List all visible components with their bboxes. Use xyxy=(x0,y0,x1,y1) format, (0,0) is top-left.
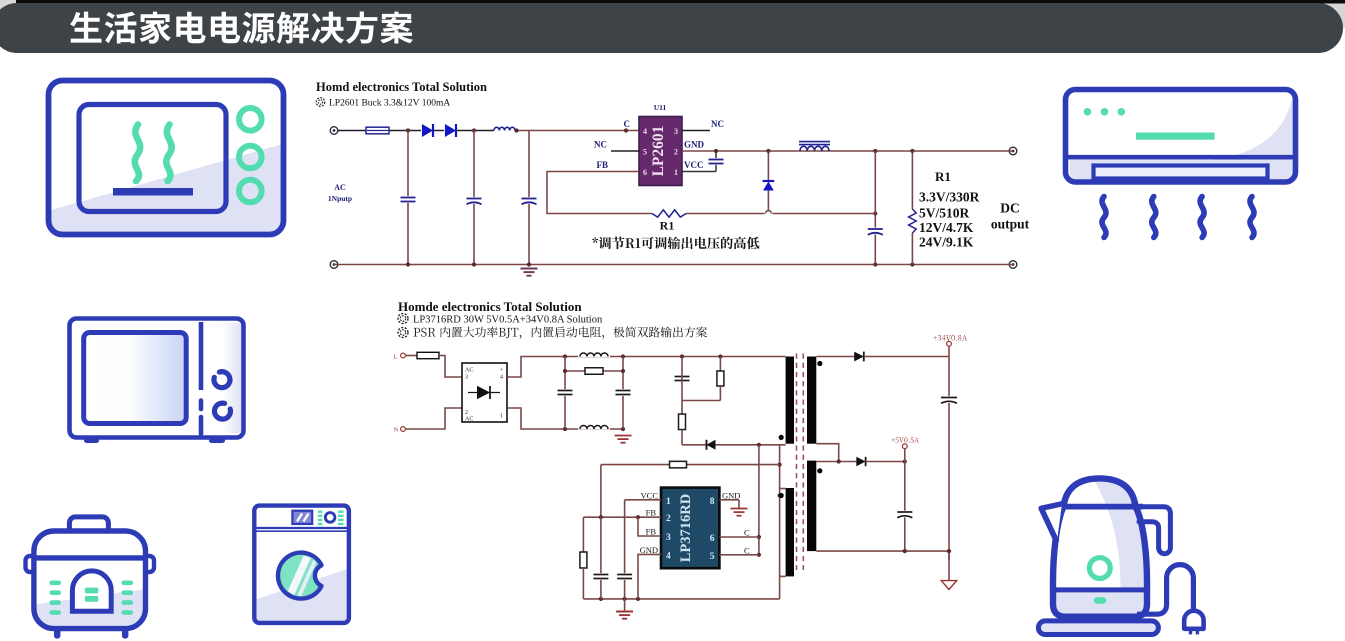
svg-text:VCC: VCC xyxy=(684,160,704,170)
svg-text:3: 3 xyxy=(674,127,678,136)
svg-text:LP2601: LP2601 xyxy=(650,126,667,177)
svg-text:GND: GND xyxy=(684,140,705,150)
svg-text:U11: U11 xyxy=(654,103,667,112)
svg-text:1: 1 xyxy=(674,168,678,177)
svg-text:LP3716RD: LP3716RD xyxy=(678,494,694,562)
svg-text:2: 2 xyxy=(674,148,678,157)
svg-text:LP3716RD 30W 5V0.5A+34V0.8A So: LP3716RD 30W 5V0.5A+34V0.8A Solution xyxy=(413,315,603,326)
svg-text:AC: AC xyxy=(334,183,346,192)
svg-text:4: 4 xyxy=(666,551,671,561)
svg-text:1: 1 xyxy=(500,414,503,420)
svg-text:24V/9.1K: 24V/9.1K xyxy=(919,235,974,250)
svg-text:C: C xyxy=(744,545,750,555)
svg-text:FB: FB xyxy=(646,508,657,518)
svg-text:2: 2 xyxy=(465,410,468,416)
svg-text:NC: NC xyxy=(711,119,724,129)
svg-text:4: 4 xyxy=(500,375,503,381)
svg-text:AC: AC xyxy=(465,368,473,374)
svg-text:8: 8 xyxy=(710,497,715,507)
svg-text:L: L xyxy=(394,354,398,361)
svg-text:GND: GND xyxy=(640,545,658,555)
svg-text:5: 5 xyxy=(643,148,647,157)
svg-text:Homde electronics Total Solut: Homde electronics Total Solution xyxy=(398,299,582,314)
svg-text:VCC: VCC xyxy=(641,490,659,500)
svg-text:3.3V/330R: 3.3V/330R xyxy=(919,190,980,205)
svg-text:C: C xyxy=(744,528,750,538)
svg-text:output: output xyxy=(991,217,1030,232)
svg-text:12V/4.7K: 12V/4.7K xyxy=(919,220,974,235)
svg-text:2: 2 xyxy=(666,514,671,524)
svg-text:FB: FB xyxy=(596,160,608,170)
svg-text:Homd electronics Total Soluti: Homd electronics Total Solution xyxy=(316,80,487,94)
svg-text:3: 3 xyxy=(666,533,671,543)
svg-text:1Nputp: 1Nputp xyxy=(328,194,352,203)
svg-text:C: C xyxy=(624,119,631,129)
svg-text:FB: FB xyxy=(646,527,657,537)
svg-text:6: 6 xyxy=(643,168,647,177)
svg-text:6: 6 xyxy=(710,534,715,544)
svg-text:R1: R1 xyxy=(935,169,951,184)
svg-text:1: 1 xyxy=(666,497,671,507)
svg-text:DC: DC xyxy=(1000,201,1020,216)
svg-text:5V/510R: 5V/510R xyxy=(919,206,970,221)
svg-text:R1: R1 xyxy=(660,219,675,233)
svg-text:+: + xyxy=(499,367,503,374)
svg-text:NC: NC xyxy=(594,140,607,150)
svg-text:LP2601 Buck 3.3&12V 100mA: LP2601 Buck 3.3&12V 100mA xyxy=(329,99,450,109)
svg-text:3: 3 xyxy=(465,375,468,381)
svg-text:GND: GND xyxy=(722,490,740,500)
svg-text:N: N xyxy=(394,427,399,434)
svg-text:AC: AC xyxy=(465,417,473,423)
svg-text:4: 4 xyxy=(643,127,647,136)
svg-text:5: 5 xyxy=(710,552,715,562)
